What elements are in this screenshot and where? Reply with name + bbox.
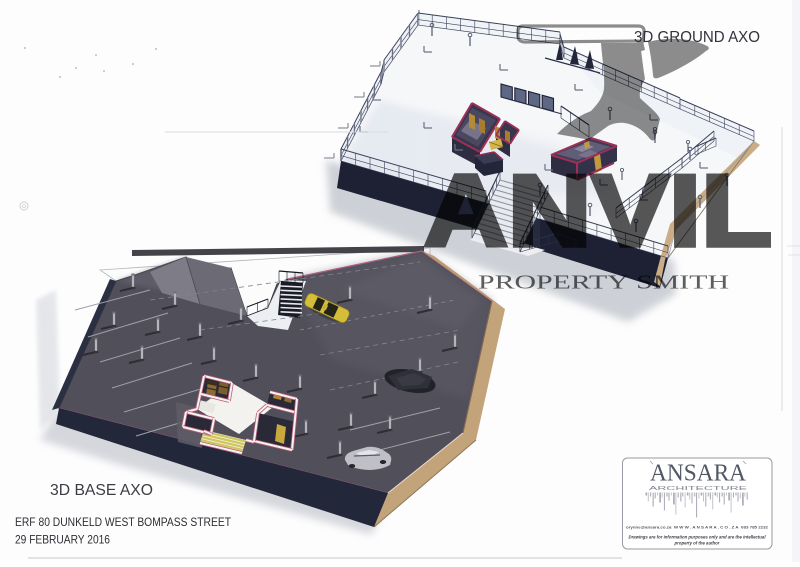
svg-text:PROPERTY SMITH: PROPERTY SMITH bbox=[478, 272, 729, 294]
svg-text:ANSARA: ANSARA bbox=[650, 461, 747, 487]
svg-text:3D BASE AXO: 3D BASE AXO bbox=[50, 482, 153, 499]
svg-text:29 FEBRUARY 2016: 29 FEBRUARY 2016 bbox=[15, 535, 110, 547]
svg-text:Drawings are for information: Drawings are for information purposes on… bbox=[628, 535, 766, 540]
svg-text:ARCHITECTURE: ARCHITECTURE bbox=[649, 486, 748, 492]
svg-text:property of the author: property of the author bbox=[674, 541, 720, 546]
svg-text:3D GROUND AXO: 3D GROUND AXO bbox=[634, 29, 760, 46]
svg-text:orynne@ansara.co.za W W W . A: orynne@ansara.co.za W W W . A N S A R A … bbox=[626, 525, 769, 530]
svg-text:ANVIL: ANVIL bbox=[424, 156, 772, 268]
svg-text:ERF 80 DUNKELD WEST BOMPASS ST: ERF 80 DUNKELD WEST BOMPASS STREET bbox=[15, 517, 231, 529]
